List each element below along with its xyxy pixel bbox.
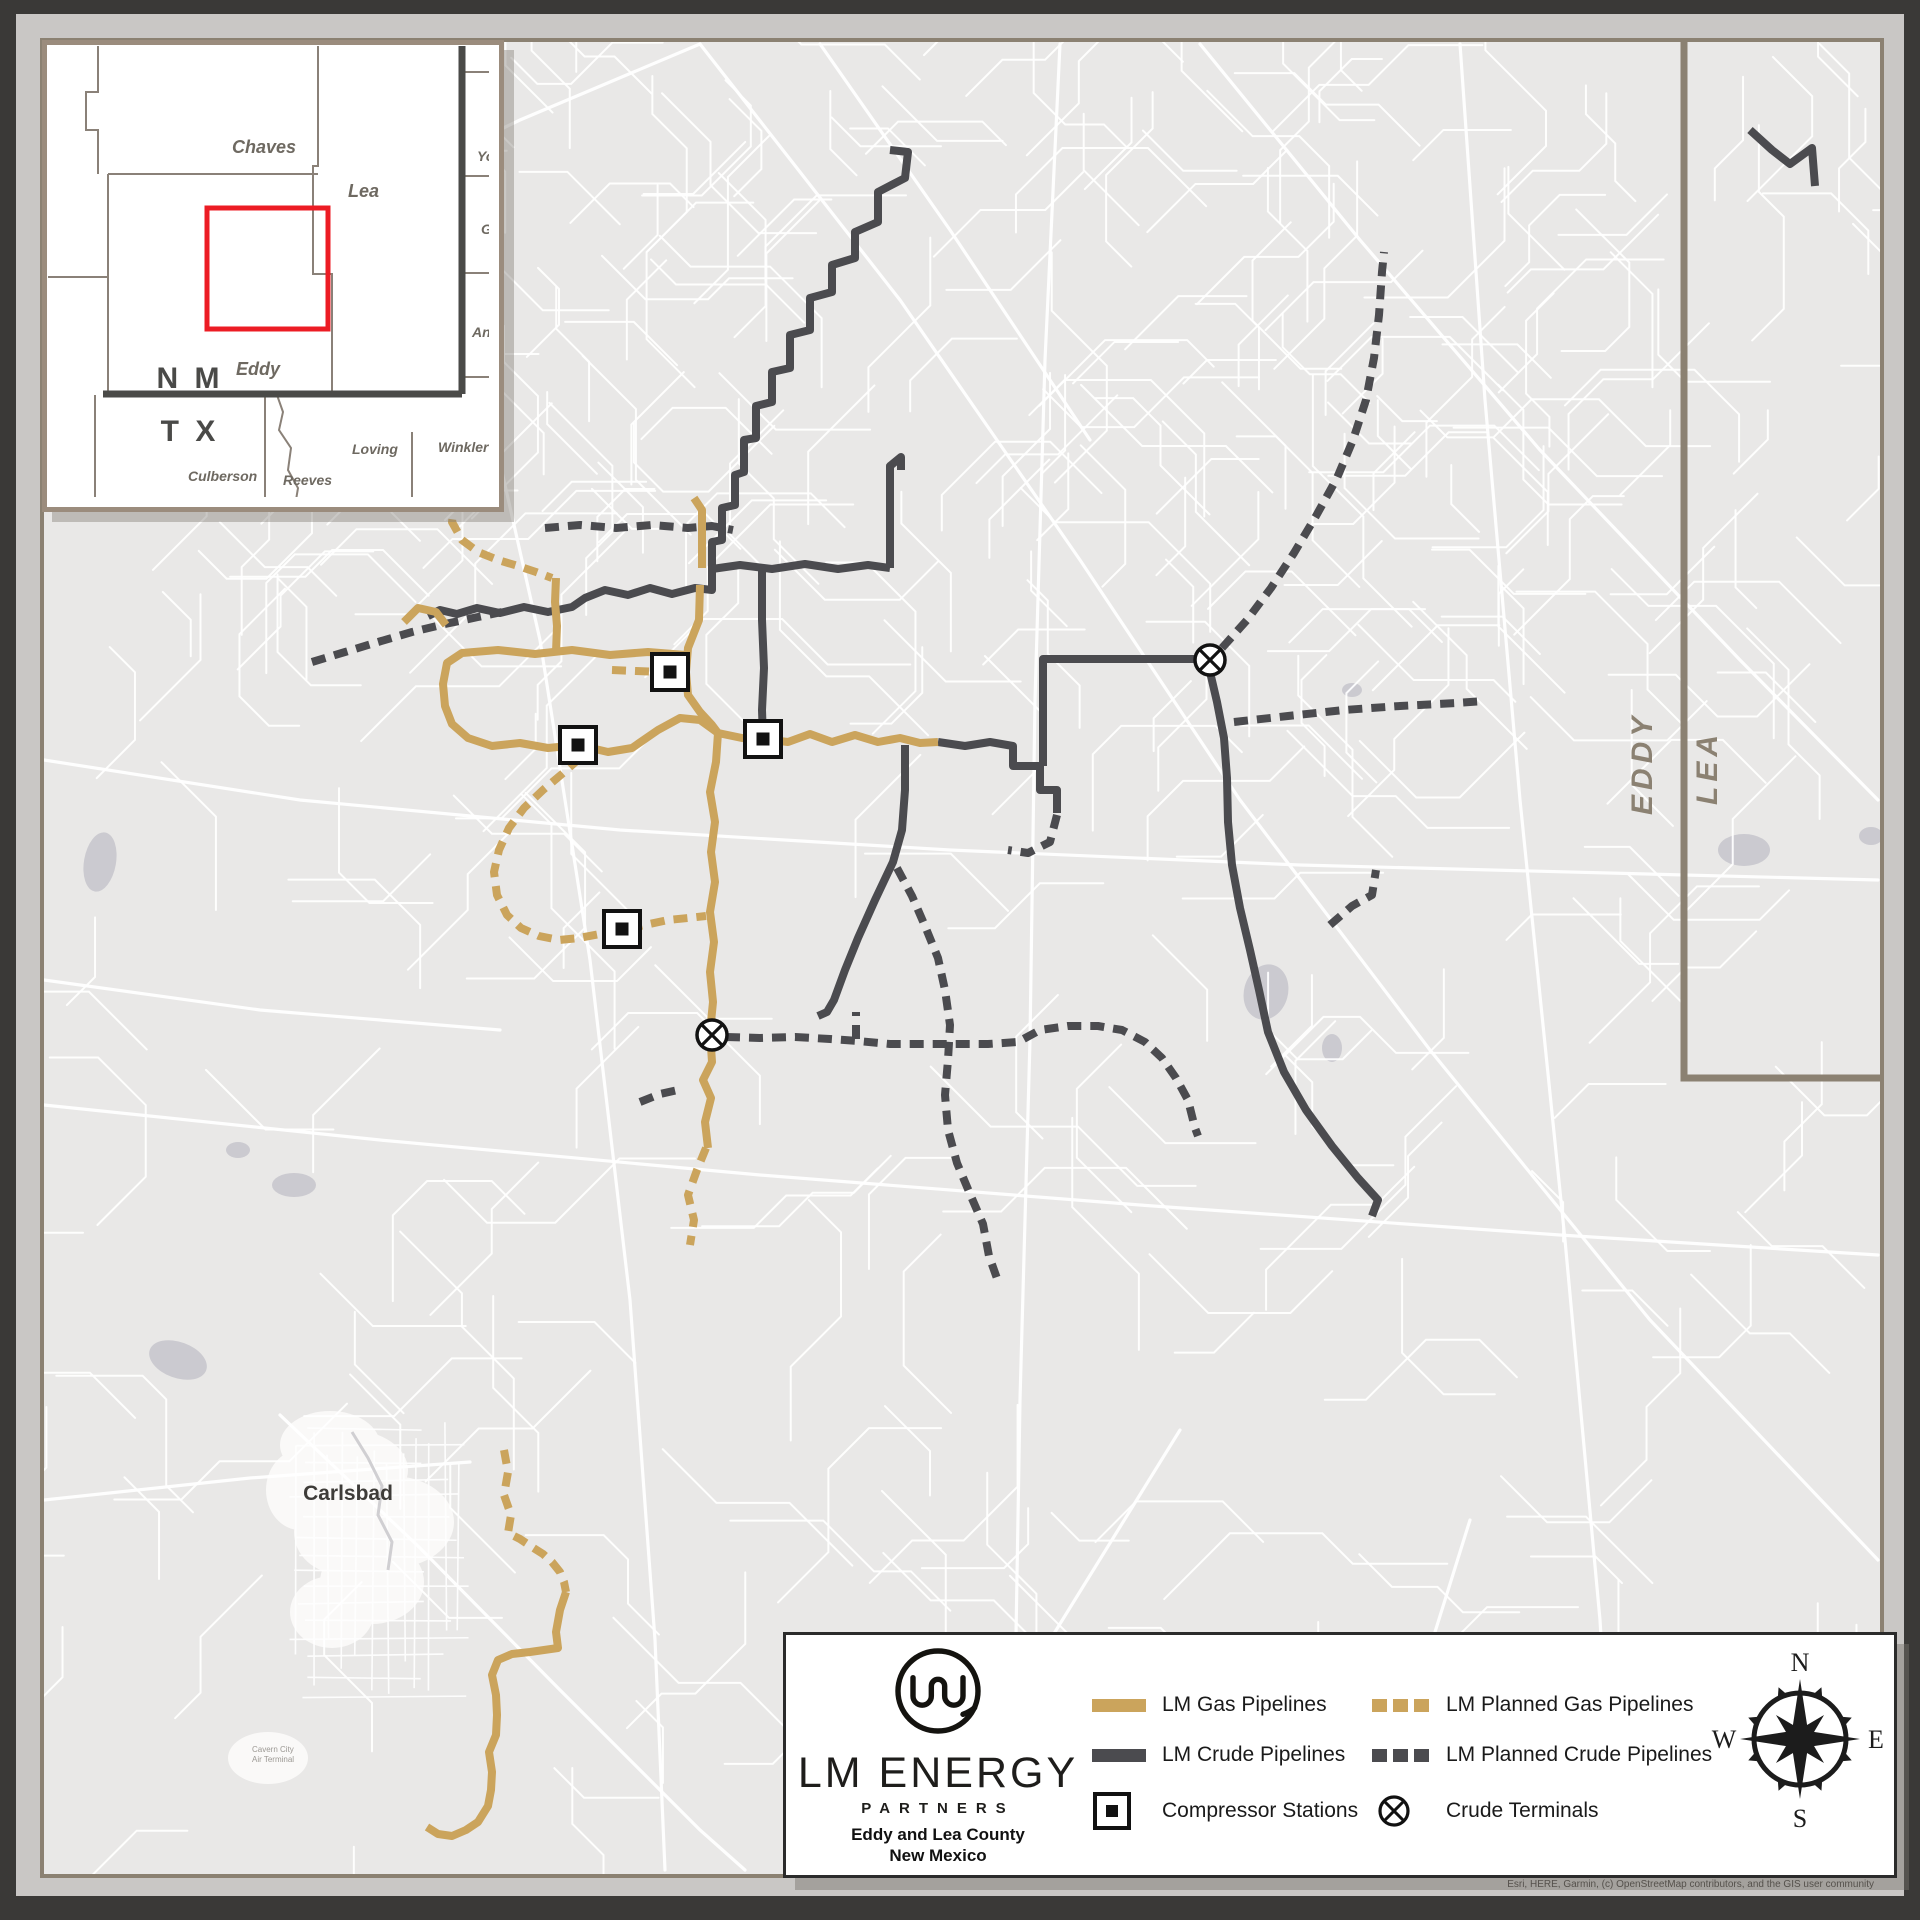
crude-pipeline-swatch — [1092, 1749, 1146, 1762]
lake — [272, 1173, 316, 1197]
compressor-station-icon — [1092, 1791, 1132, 1831]
compressor-station-marker — [652, 654, 688, 690]
compressor-station-marker — [560, 727, 596, 763]
inset-state-label-nm: N M — [157, 362, 224, 395]
compass-rose-icon: N E S W — [1704, 1643, 1896, 1835]
inset-county-label: Eddy — [236, 359, 281, 379]
lake — [1322, 1034, 1342, 1062]
brand-block: LM ENERGY PARTNERS Eddy and Lea County N… — [788, 1635, 1088, 1875]
inset-county-label: Loving — [352, 441, 398, 457]
crude-terminal-marker — [697, 1020, 727, 1050]
compressor-station-marker — [604, 911, 640, 947]
map-title-line1: Eddy and Lea County — [788, 1825, 1088, 1845]
legend-label-crude: LM Crude Pipelines — [1162, 1742, 1345, 1768]
pipeline-map-page: { "frame": { "attribution": "Esri, HERE,… — [0, 0, 1920, 1920]
planned-crude-pipeline-swatch — [1372, 1749, 1432, 1762]
compass-n: N — [1791, 1648, 1810, 1677]
map-title-line2: New Mexico — [788, 1846, 1088, 1866]
inset-county-label: Gaines — [481, 221, 489, 237]
brand-subtitle: PARTNERS — [788, 1800, 1088, 1817]
lm-energy-logo-icon — [888, 1641, 988, 1741]
inset-state-label-tx: T X — [161, 415, 220, 448]
airport-label: Air Terminal — [252, 1755, 294, 1764]
airport-label: Cavern City — [252, 1745, 294, 1754]
crude-terminal-marker — [1195, 645, 1225, 675]
inset-county-label: Lea — [348, 181, 379, 201]
county-label-lea: LEA — [1691, 730, 1724, 805]
legend-label-planned-gas: LM Planned Gas Pipelines — [1446, 1692, 1693, 1718]
gas-pipeline-swatch — [1092, 1699, 1146, 1712]
inset-county-label: Andrews — [471, 324, 489, 340]
legend-label-compressor: Compressor Stations — [1162, 1798, 1358, 1824]
lake — [1718, 834, 1770, 866]
inset-county-label: Yoakum — [477, 148, 489, 164]
inset-county-label: Reeves — [283, 472, 332, 488]
compass-w: W — [1712, 1725, 1737, 1754]
inset-locator-map: ChavesLeaEddyCulbersonReevesLovingWinkle… — [42, 40, 504, 512]
compressor-station-marker — [745, 721, 781, 757]
lake — [226, 1142, 250, 1158]
lake — [1342, 683, 1362, 697]
lm-crude-pipeline — [712, 564, 890, 569]
legend-label-terminal: Crude Terminals — [1446, 1798, 1599, 1824]
legend-label-gas: LM Gas Pipelines — [1162, 1692, 1327, 1718]
compass-s: S — [1793, 1804, 1807, 1833]
county-label-eddy: EDDY — [1626, 712, 1659, 815]
legend-label-planned-crude: LM Planned Crude Pipelines — [1446, 1742, 1712, 1768]
city-label-carlsbad: Carlsbad — [303, 1482, 393, 1505]
inset-county-label: Chaves — [232, 137, 296, 157]
planned-gas-pipeline-swatch — [1372, 1699, 1432, 1712]
inset-county-label: Winkler — [438, 439, 489, 455]
lm-crude-pipeline — [762, 569, 764, 739]
inset-map-svg: ChavesLeaEddyCulbersonReevesLovingWinkle… — [47, 45, 489, 497]
map-attribution: Esri, HERE, Garmin, (c) OpenStreetMap co… — [1507, 1879, 1874, 1890]
lm-gas-pipeline — [555, 578, 557, 652]
compass-e: E — [1868, 1725, 1884, 1754]
crude-terminal-icon — [1376, 1793, 1412, 1829]
lake — [1859, 827, 1883, 845]
inset-county-label: Culberson — [188, 468, 257, 484]
legend-panel: LM ENERGY PARTNERS Eddy and Lea County N… — [783, 1632, 1897, 1878]
brand-name: LM ENERGY — [788, 1749, 1088, 1798]
